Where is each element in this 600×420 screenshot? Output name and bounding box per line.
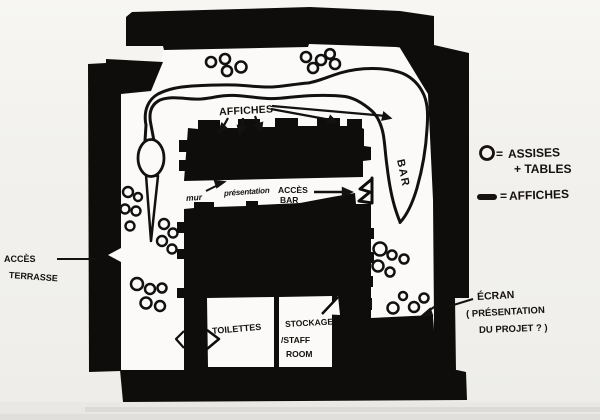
svg-text:ACCÈS: ACCÈS	[4, 254, 36, 264]
svg-text:AFFICHES: AFFICHES	[509, 187, 569, 203]
svg-text:=: =	[496, 147, 503, 161]
svg-text:mur: mur	[186, 192, 203, 203]
svg-text:=: =	[500, 189, 507, 203]
svg-text:ASSISES: ASSISES	[508, 145, 560, 161]
svg-text:+ TABLES: + TABLES	[514, 162, 571, 176]
svg-text:BAR: BAR	[280, 195, 298, 205]
svg-text:ROOM: ROOM	[286, 349, 312, 359]
svg-text:/STAFF: /STAFF	[281, 335, 310, 345]
svg-text:ACCÈS: ACCÈS	[278, 185, 308, 195]
svg-text:ÉCRAN: ÉCRAN	[477, 288, 515, 303]
